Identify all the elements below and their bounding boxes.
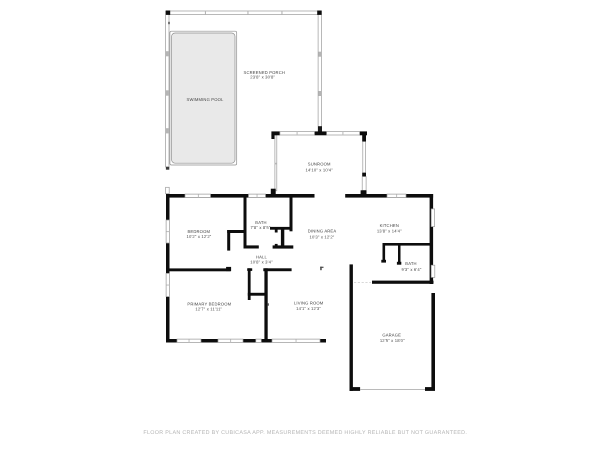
svg-text:10'3" x 12'2": 10'3" x 12'2" <box>310 234 335 239</box>
svg-text:FLOOR PLAN CREATED BY CUBICASA: FLOOR PLAN CREATED BY CUBICASA APP. MEAS… <box>143 430 467 436</box>
svg-text:DINING AREA: DINING AREA <box>308 229 337 234</box>
svg-text:GARAGE: GARAGE <box>382 333 401 338</box>
svg-text:14'10" x 10'4": 14'10" x 10'4" <box>305 167 333 172</box>
svg-text:12'7" x 11'11": 12'7" x 11'11" <box>195 306 222 311</box>
svg-text:23'8" x 30'8": 23'8" x 30'8" <box>250 75 275 80</box>
svg-text:9'3" x 6'4": 9'3" x 6'4" <box>402 267 422 272</box>
svg-text:14'1" x 12'3": 14'1" x 12'3" <box>296 306 321 311</box>
svg-text:12'5" x 18'0": 12'5" x 18'0" <box>380 338 405 343</box>
svg-text:KITCHEN: KITCHEN <box>380 223 399 228</box>
svg-text:SUNROOM: SUNROOM <box>308 161 331 166</box>
svg-text:10'2" x 12'2": 10'2" x 12'2" <box>187 234 212 239</box>
svg-text:10'8" x 3'4": 10'8" x 3'4" <box>250 259 273 264</box>
svg-text:SWIMMING POOL: SWIMMING POOL <box>187 97 224 102</box>
svg-text:7'8" x 8'5": 7'8" x 8'5" <box>251 225 271 230</box>
svg-text:BATH: BATH <box>405 261 416 266</box>
svg-text:13'8" x 14'4": 13'8" x 14'4" <box>377 228 402 233</box>
